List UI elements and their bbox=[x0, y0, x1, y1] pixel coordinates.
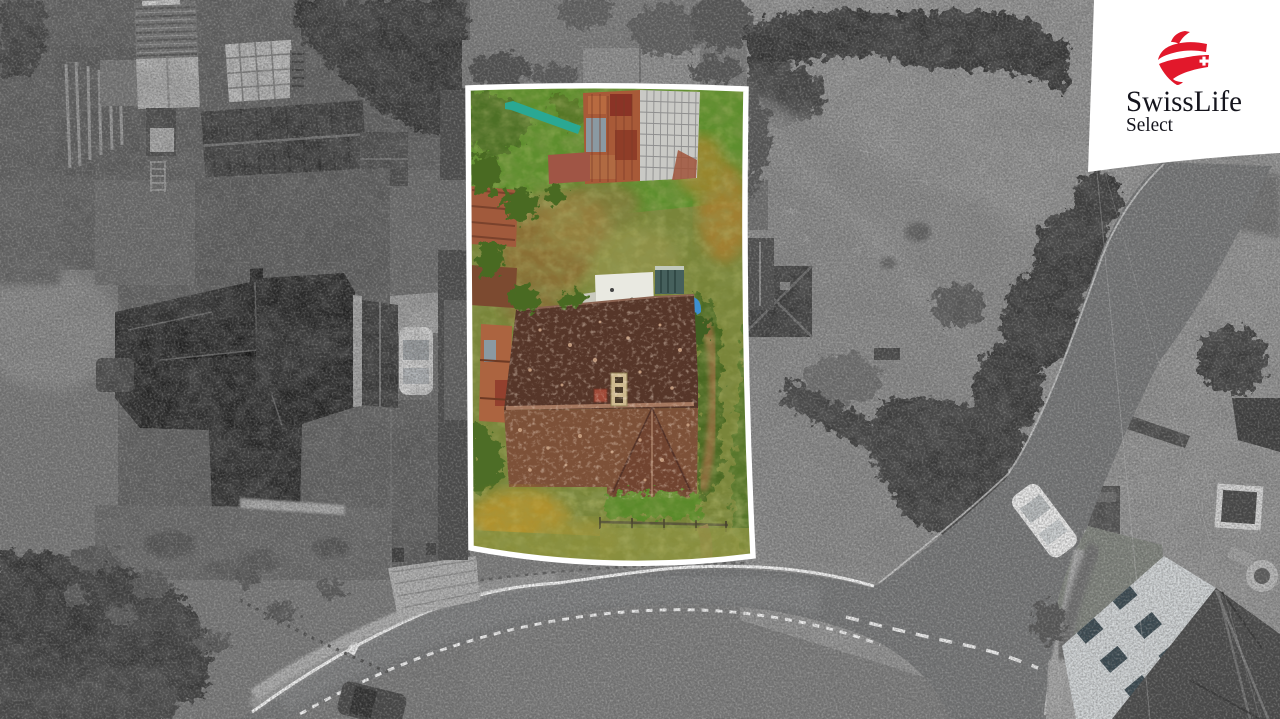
svg-text:Select: Select bbox=[1126, 114, 1173, 136]
